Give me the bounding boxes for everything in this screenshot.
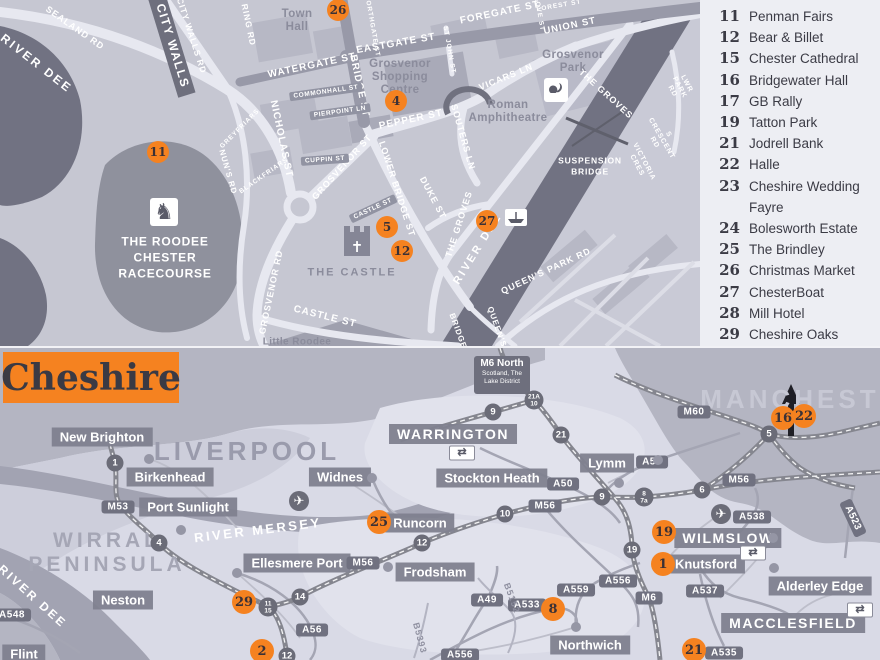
map-marker: 1 (651, 552, 675, 576)
road-shield: M60 (678, 406, 711, 419)
town-label: Northwich (550, 636, 630, 655)
legend-item: 16Bridgewater Hall (714, 70, 876, 91)
boat-icon (505, 209, 527, 226)
town-dot (768, 533, 778, 543)
road-shield: A56 (296, 624, 328, 637)
area-label: Little Roodee (263, 336, 332, 346)
legend-item: 25The Brindley (714, 239, 876, 260)
legend-item-number: 16 (714, 70, 740, 91)
map-marker: 12 (391, 240, 413, 262)
town-dot (614, 478, 624, 488)
junction-number: 8 (642, 490, 646, 497)
legend-item-number: 11 (714, 6, 740, 27)
town-label: WARRINGTON (389, 424, 517, 444)
legend-item-label: Christmas Market (749, 260, 855, 281)
junction-number: 7a (640, 497, 647, 504)
map-feature-label: SUSPENSION BRIDGE (558, 156, 622, 179)
junction-badge: 9 (594, 489, 611, 506)
junction-badge: 4 (151, 535, 168, 552)
town-dot (367, 473, 377, 483)
junction-badge: 10 (497, 506, 514, 523)
legend-item: 15Chester Cathedral (714, 48, 876, 69)
legend-item-label: The Brindley (749, 239, 825, 260)
road-shield: A538 (733, 511, 771, 524)
town-dot (144, 454, 154, 464)
road-shield: A559 (557, 584, 595, 597)
town-label: Alderley Edge (769, 577, 872, 596)
legend-item: 23Cheshire Wedding Fayre (714, 176, 876, 218)
legend-item: 12Bear & Billet (714, 27, 876, 48)
railway-station-icon: ⇄ (449, 446, 475, 461)
town-label: Lymm (580, 454, 634, 473)
legend-item: 28Mill Hotel (714, 303, 876, 324)
road-shield: M53 (102, 501, 135, 514)
town-label: Knutsford (667, 555, 745, 574)
legend-item-label: GB Rally (749, 91, 802, 112)
town-dot (571, 622, 581, 632)
map-marker: 11 (147, 141, 169, 163)
map-feature-label: THE ROODEE CHESTER RACECOURSE (118, 234, 211, 283)
map-marker: 2 (250, 639, 274, 660)
map-marker: 27 (476, 210, 498, 232)
junction-badge: 19 (624, 542, 641, 559)
legend-item-label: Bolesworth Estate (749, 218, 858, 239)
junction-badge: 21 (553, 427, 570, 444)
legend-item-number: 15 (714, 48, 740, 69)
junction-badge: 5 (761, 426, 778, 443)
junction-number: 11 (265, 600, 272, 607)
road-shield: A548 (0, 609, 31, 622)
town-label: Runcorn (385, 514, 454, 533)
airport-icon: ✈ (711, 504, 731, 524)
legend-item: 21Jodrell Bank (714, 133, 876, 154)
legend-item-number: 22 (714, 154, 740, 175)
railway-station-icon: ⇄ (740, 546, 766, 561)
legend-item: 17GB Rally (714, 91, 876, 112)
svg-text:✝: ✝ (351, 238, 364, 256)
town-label: Port Sunlight (139, 498, 237, 517)
legend-item-label: Chester Cathedral (749, 48, 859, 69)
junction-badge: 1 (107, 455, 124, 472)
town-dot (176, 525, 186, 535)
chester-city-map: ✝ SEALAND RDCITY WALLS RDRING RDNORTHGAT… (0, 0, 700, 346)
legend-item: 19Tatton Park (714, 112, 876, 133)
map-marker: 25 (367, 510, 391, 534)
junction-badge: 1115 (259, 598, 278, 617)
town-dot (769, 563, 779, 573)
town-label: Neston (93, 591, 153, 610)
legend-item-number: 12 (714, 27, 740, 48)
legend-item-label: Bear & Billet (749, 27, 823, 48)
road-shield: A535 (705, 647, 743, 660)
railway-station-icon: ⇄ (847, 603, 873, 618)
map-marker: 8 (541, 597, 565, 621)
road-shield: A537 (686, 585, 724, 598)
region-title-banner: Cheshire (3, 352, 179, 403)
town-label: Widnes (309, 468, 371, 487)
legend-item: 26Christmas Market (714, 260, 876, 281)
m6-sign-title: M6 North (474, 358, 530, 370)
road-shield: M56 (347, 557, 380, 570)
legend-item-label: Cheshire Wedding Fayre (749, 176, 860, 218)
legend-item-number: 29 (714, 324, 740, 345)
area-label: Grosvenor Park (542, 49, 604, 75)
legend-item-number: 17 (714, 91, 740, 112)
area-label: THE CASTLE (307, 267, 396, 280)
legend-list: 11Penman Fairs12Bear & Billet15Chester C… (714, 6, 876, 345)
legend-item-label: Halle (749, 154, 780, 175)
legend-item-number: 19 (714, 112, 740, 133)
legend-item-number: 25 (714, 239, 740, 260)
town-label: New Brighton (52, 428, 153, 447)
junction-badge: 87a (635, 488, 654, 507)
region-title: Cheshire (1, 357, 181, 399)
squirrel-icon (544, 78, 568, 102)
map-marker: 22 (792, 404, 816, 428)
junction-number: 21A (528, 393, 540, 400)
junction-number: 10 (530, 400, 537, 407)
legend-item-label: Tatton Park (749, 112, 817, 133)
legend-item-label: Jodrell Bank (749, 133, 823, 154)
legend-item: 24Bolesworth Estate (714, 218, 876, 239)
legend-item-label: Cheshire Oaks (749, 324, 838, 345)
map-marker: 19 (652, 520, 676, 544)
junction-badge: 9 (485, 404, 502, 421)
legend-item: 11Penman Fairs (714, 6, 876, 27)
airport-icon: ✈ (289, 491, 309, 511)
legend-panel: 11Penman Fairs12Bear & Billet15Chester C… (700, 0, 880, 346)
junction-badge: 12 (279, 648, 296, 660)
town-dot (232, 568, 242, 578)
town-label: Flint (2, 645, 45, 660)
legend-item-number: 24 (714, 218, 740, 239)
town-label: Birkenhead (127, 468, 214, 487)
legend-item-number: 21 (714, 133, 740, 154)
city-name-label: LIVERPOOL (154, 437, 340, 467)
road-shield: A556 (599, 575, 637, 588)
road-shield: A556 (441, 649, 479, 660)
town-label: Ellesmere Port (243, 554, 350, 573)
legend-item-number: 27 (714, 282, 740, 303)
junction-badge: 14 (292, 589, 309, 606)
legend-item-number: 23 (714, 176, 740, 197)
castle-icon: ✝ (344, 226, 370, 256)
junction-badge: 21A10 (525, 391, 544, 410)
legend-item-number: 26 (714, 260, 740, 281)
legend-item: 27ChesterBoat (714, 282, 876, 303)
road-shield: M6 (636, 592, 663, 605)
town-dot (653, 455, 663, 465)
junction-badge: 12 (414, 535, 431, 552)
legend-item-label: Mill Hotel (749, 303, 805, 324)
racehorse-icon: ♞ (150, 198, 178, 226)
road-shield: M56 (529, 500, 562, 513)
town-label: Frodsham (396, 563, 475, 582)
map-marker: 26 (327, 0, 349, 21)
map-page: ✝ SEALAND RDCITY WALLS RDRING RDNORTHGAT… (0, 0, 880, 660)
area-label: Town Hall (282, 8, 313, 34)
legend-item: 29Cheshire Oaks (714, 324, 876, 345)
map-marker: 21 (682, 638, 706, 660)
map-marker: 4 (385, 90, 407, 112)
road-shield: M56 (723, 474, 756, 487)
m6-north-sign: M6 North Scotland, The Lake District (474, 356, 530, 394)
area-label: Roman Amphitheatre (469, 99, 548, 125)
road-shield: A49 (471, 594, 503, 607)
town-label: Stockton Heath (436, 469, 547, 488)
m6-sign-sub2: Lake District (474, 378, 530, 386)
road-shield: A50 (547, 478, 579, 491)
road-shield: A56 (636, 456, 668, 469)
map-marker: 5 (376, 216, 398, 238)
junction-number: 15 (264, 607, 271, 614)
map-marker: 29 (232, 590, 256, 614)
m6-sign-sub1: Scotland, The (474, 370, 530, 378)
legend-item: 22Halle (714, 154, 876, 175)
town-label: WILMSLOW (674, 528, 781, 548)
town-label: MACCLESFIELD (721, 613, 865, 633)
legend-item-label: Bridgewater Hall (749, 70, 848, 91)
cheshire-regional-map: Cheshire M6 North Scotland, The Lake Dis… (0, 348, 880, 660)
town-dot (383, 562, 393, 572)
legend-item-label: ChesterBoat (749, 282, 824, 303)
legend-item-number: 28 (714, 303, 740, 324)
legend-item-label: Penman Fairs (749, 6, 833, 27)
junction-badge: 6 (694, 482, 711, 499)
